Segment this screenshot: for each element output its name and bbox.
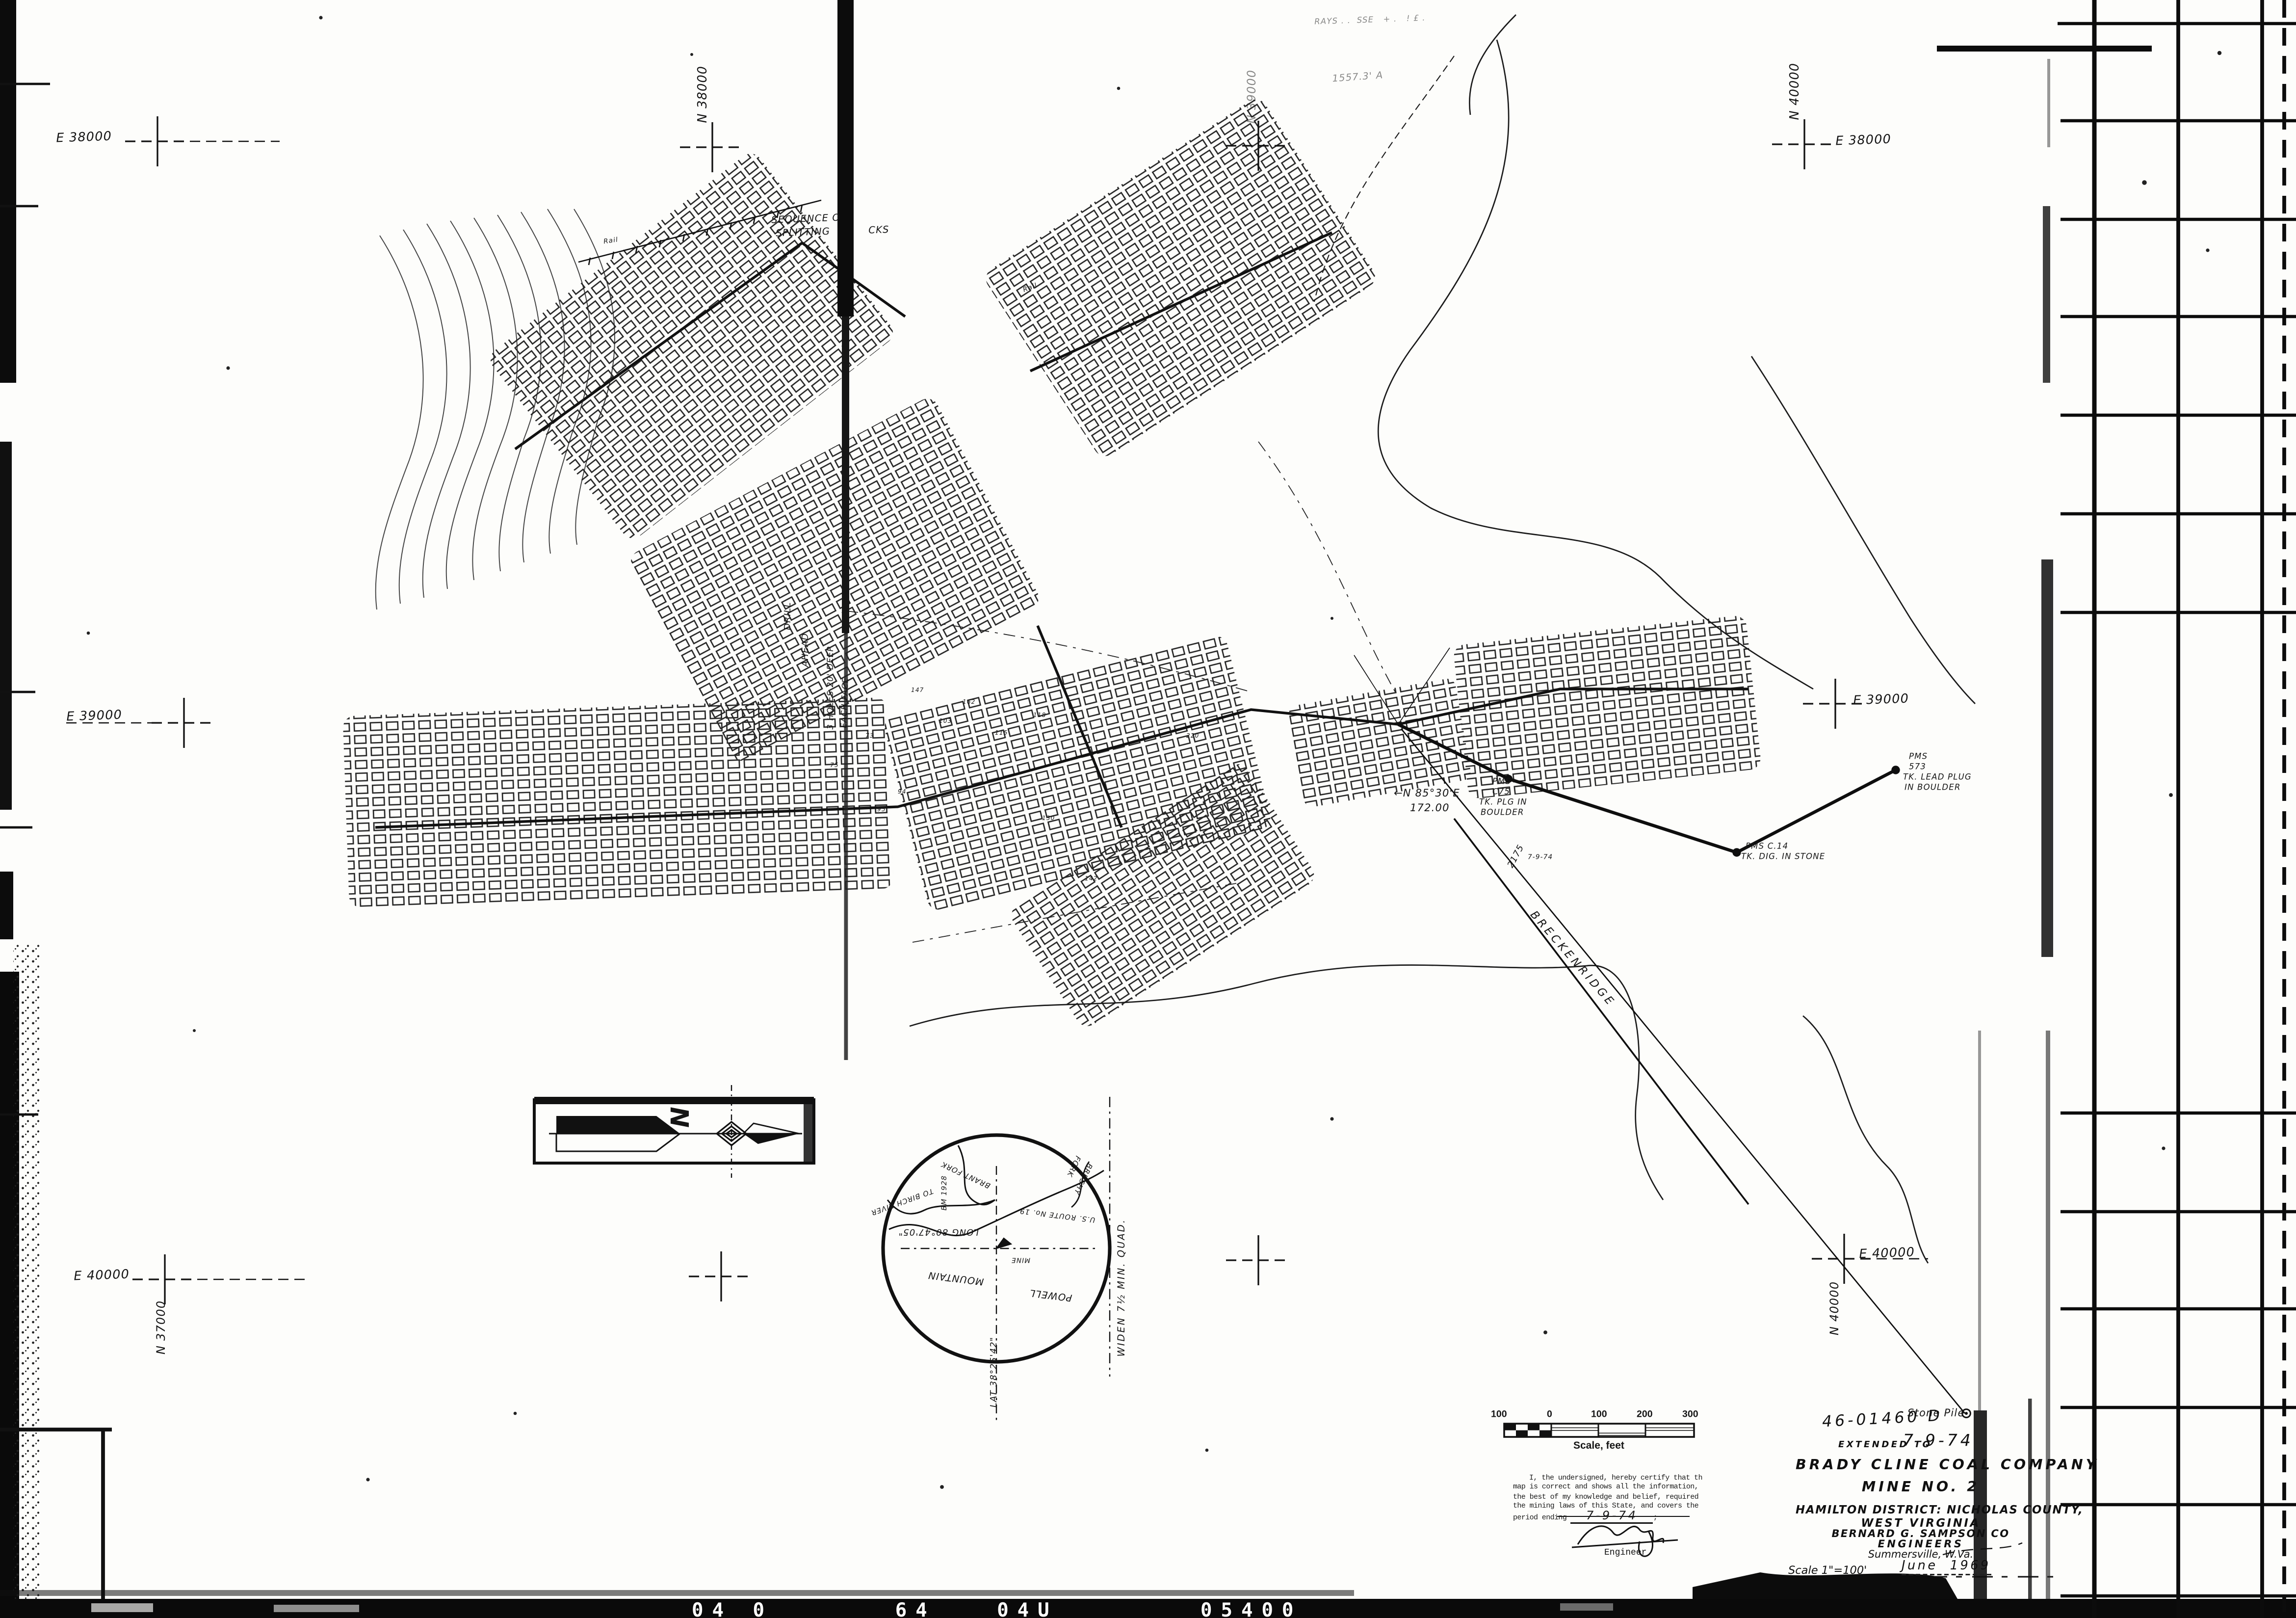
grid-label-e39000-left: E 39000	[66, 710, 123, 724]
grid-label-n40000-bottom: N 40000	[1829, 1281, 1841, 1335]
label-pms573-line1: PMS	[1909, 755, 1928, 763]
pillar-number-94: 94	[898, 789, 907, 795]
label-sequence-1: SEQUENCE O	[771, 213, 840, 225]
pillar-number-130: 130	[1042, 816, 1055, 822]
scale-note: Scale 1"=100'	[1788, 1564, 1867, 1577]
inset-label-to-birch-river: TO BIRCH RIVER	[869, 1185, 933, 1214]
state-line: WEST VIRGINIA	[1796, 1516, 2046, 1529]
scalebar-label-200: 200	[1637, 1411, 1653, 1421]
extended-date: 7-9-74	[1903, 1431, 1974, 1450]
pillar-number-142: 142	[1085, 876, 1098, 882]
inset-label-brushy-fork: FORK	[1064, 1154, 1080, 1178]
label-pmsc75-line4: BOULDER	[1481, 811, 1524, 819]
pillar-number-162: 162	[963, 699, 976, 705]
label-pmsc75-line1: PMS	[1492, 780, 1511, 788]
label-sequence-3: CKS	[868, 225, 889, 236]
pillar-number-147: 147	[911, 688, 924, 693]
label-pmsc75-line2: C75	[1492, 790, 1510, 798]
certification-line: I, the undersigned, hereby certify that …	[1513, 1474, 1704, 1483]
inset-label-powell: POWELL	[1029, 1287, 1072, 1302]
inset-label-long: LONG 80°47'05"	[898, 1226, 979, 1235]
label-pmsc14-line1: PMS C.14	[1746, 845, 1788, 853]
label-rail-2: Rail	[1023, 284, 1039, 295]
certification-period-line: period ending 7-9-74;	[1513, 1512, 1704, 1524]
mine-name: MINE NO. 2	[1796, 1480, 2046, 1496]
label-widen-quad: WIDEN 7½ MIN. QUAD.	[1117, 1219, 1127, 1356]
grid-label-e39000-right: E 39000	[1853, 694, 1909, 708]
label-date-7974: 7-9-74	[1528, 856, 1553, 863]
scalebar-label-100R: 100	[1591, 1411, 1607, 1421]
pillar-number-73: 73	[865, 733, 874, 739]
pillar-number-75: 75	[830, 763, 839, 769]
map-annotations-layer: 1000100200300Scale, feetE 38000E 38000E …	[0, 0, 2296, 1618]
grid-label-n39000-top: N 39000	[1247, 70, 1258, 124]
inset-label-lat: LAT 38°25'42"	[991, 1337, 999, 1407]
district-line: HAMILTON DISTRICT: NICHOLAS COUNTY,	[1796, 1503, 2046, 1516]
label-ahead: AHEAD	[802, 633, 811, 667]
scalebar-caption: Scale, feet	[1573, 1441, 1624, 1452]
inset-label-route19: U.S. ROUTE No. 19	[1019, 1204, 1096, 1220]
label-rail-1: Rail	[603, 239, 619, 247]
scalebar-label-100L: 100	[1491, 1411, 1507, 1421]
label-bearing-dist: 172.00	[1410, 804, 1450, 814]
grid-label-n37000-bottom: N 37000	[156, 1300, 168, 1354]
grid-label-n40000-top: N 40000	[1790, 63, 1802, 120]
scalebar-label-300: 300	[1682, 1411, 1698, 1421]
pillar-number-115: 115	[995, 730, 1008, 736]
engineer-title: ENGINEERS	[1796, 1538, 2046, 1550]
grid-label-n38000-top: N 38000	[698, 66, 710, 123]
scanned-mine-map-sheet: 1000100200300Scale, feetE 38000E 38000E …	[0, 0, 2296, 1618]
label-top-note-2: 1557.3' A	[1332, 71, 1383, 84]
label-drill: DRILL	[784, 602, 793, 630]
label-breckenridge: BRECKENRIDGE	[1528, 909, 1617, 1009]
label-pmsc14-line2: TK. DIG. IN STONE	[1741, 855, 1825, 863]
label-pms573-line4: IN BOULDER	[1905, 786, 1961, 794]
label-sequence-2: SPLITTING	[776, 227, 830, 239]
certification-period-date: 7-9-74	[1586, 1509, 1638, 1522]
label-bearing: ←N 85°30'E	[1394, 789, 1460, 799]
label-pms573-line3: TK. LEAD PLUG	[1903, 775, 1972, 784]
pillar-number-103: 103	[939, 718, 952, 724]
label-top-note-1: RAYS . . SSE + . ! £ .	[1314, 16, 1426, 28]
label-eachface: EACH FACE	[842, 677, 852, 728]
north-arrow-letter: N	[670, 1106, 695, 1128]
grid-label-e40000-right: E 40000	[1859, 1247, 1915, 1262]
signer-title: Engineer	[1604, 1547, 1646, 1558]
label-pms573-line2: 573	[1909, 765, 1926, 773]
company-name: BRADY CLINE COAL COMPANY	[1796, 1458, 2046, 1474]
inset-label-bm1928: BM 1928	[943, 1175, 950, 1211]
label-3holes: 3 HOLES 20' DEEP	[829, 646, 837, 730]
pillar-number-118: 118	[1033, 713, 1046, 718]
bottom-strip-digits: 04 0 64 04U 05400	[692, 1602, 1302, 1618]
inset-label-mine: MINE	[1011, 1254, 1030, 1261]
pillar-number-220: 220	[1186, 733, 1200, 739]
certification-block: I, the undersigned, hereby certify that …	[1513, 1474, 1704, 1524]
certification-line: map is correct and shows all the informa…	[1513, 1483, 1704, 1492]
scalebar-label-0: 0	[1547, 1411, 1552, 1421]
grid-label-e40000-left: E 40000	[74, 1270, 130, 1284]
pillar-number-95: 95	[877, 807, 886, 813]
label-contour-2175: 2175	[1507, 844, 1527, 870]
sheet-date: June 1969	[1902, 1559, 1991, 1575]
certification-line: the best of my knowledge and belief, req…	[1513, 1492, 1704, 1502]
grid-label-e38000-right: E 38000	[1835, 134, 1892, 149]
label-pmsc75-line3: TK. PLG IN	[1479, 800, 1527, 809]
inset-label-mountain: MOUNTAIN	[927, 1270, 984, 1286]
grid-label-e38000-left: E 38000	[56, 132, 112, 146]
